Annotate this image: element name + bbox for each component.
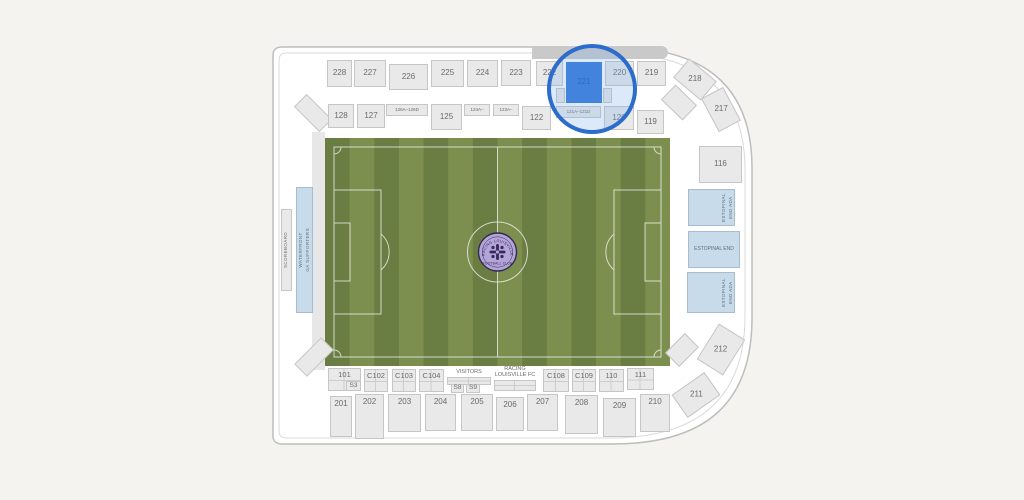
section-label: C109: [575, 372, 593, 380]
section-label: ESTOPINAL END ADA: [721, 190, 735, 225]
section-207[interactable]: 207: [527, 394, 558, 431]
section-label: 201: [334, 400, 347, 408]
section-label: 123A–: [499, 108, 512, 113]
section-label: ESTOPINAL END ADA: [721, 273, 735, 312]
racing-louisville-fc-label: RACING LOUISVILLE FC: [492, 366, 538, 380]
section-label: 217: [714, 105, 727, 113]
section-label: 225: [441, 69, 454, 77]
section-205[interactable]: 205: [461, 394, 493, 431]
section-228[interactable]: 228: [327, 60, 352, 87]
section-219[interactable]: 219: [637, 61, 666, 86]
section-label: 116: [714, 160, 727, 168]
section-C109[interactable]: C109: [572, 369, 596, 392]
section-label: C102: [367, 372, 385, 380]
section-estopinal-end-ada-south[interactable]: ESTOPINAL END ADA: [687, 272, 735, 313]
sections-layer: 2282272262252242232222212202192182171281…: [0, 0, 1024, 500]
section-label: ESTOPINAL END: [694, 247, 734, 252]
section-label: 127: [364, 112, 377, 120]
section-209[interactable]: 209: [603, 398, 636, 437]
section-label: 209: [613, 402, 626, 410]
section-label: 207: [536, 398, 549, 406]
section-estopinal-end-ada-north[interactable]: ESTOPINAL END ADA: [688, 189, 735, 226]
section-125[interactable]: 125: [431, 104, 462, 130]
section-label: 101: [338, 371, 351, 379]
section-label: 212: [714, 345, 727, 353]
section-C108[interactable]: C108: [543, 369, 569, 392]
section-226[interactable]: 226: [389, 64, 428, 90]
section-S8[interactable]: S8: [451, 384, 464, 393]
section-217[interactable]: 217: [701, 87, 741, 132]
section-label: 125: [440, 113, 453, 121]
section-label: 110: [606, 372, 618, 380]
section-210[interactable]: 210: [640, 394, 670, 432]
selected-section-highlight-circle: [547, 44, 637, 134]
section-C104[interactable]: C104: [419, 369, 444, 392]
section-label: 205: [470, 398, 483, 406]
section-label: C108: [547, 372, 565, 380]
section-corner-nw: [294, 94, 332, 132]
section-label: WATERFRONT GA SUPPORTERS: [298, 228, 312, 272]
section-S9[interactable]: S9: [466, 384, 480, 393]
visitors-label: VISITORS: [446, 369, 492, 377]
section-223[interactable]: 223: [501, 60, 531, 86]
section-224[interactable]: 224: [467, 60, 498, 87]
section-201[interactable]: 201: [330, 396, 352, 437]
section-estopinal-end[interactable]: ESTOPINAL END: [688, 231, 740, 268]
section-116[interactable]: 116: [699, 146, 742, 183]
section-label: 119: [644, 118, 657, 126]
section-208[interactable]: 208: [565, 395, 598, 434]
section-label: 202: [363, 398, 376, 406]
section-scoreboard: SCOREBOARD: [281, 209, 292, 291]
section-corner-se: [665, 333, 699, 367]
section-label: 218: [688, 75, 701, 83]
section-122[interactable]: 122: [522, 106, 551, 130]
section-label: S3: [350, 383, 358, 390]
section-206[interactable]: 206: [496, 397, 524, 431]
section-119[interactable]: 119: [637, 110, 664, 134]
section-124A–[interactable]: 124A–: [464, 104, 490, 116]
section-label: S9: [469, 385, 477, 392]
section-label: 111: [635, 371, 646, 379]
section-110[interactable]: 110: [599, 369, 624, 392]
section-label: 122: [530, 114, 543, 122]
section-225[interactable]: 225: [431, 60, 464, 87]
section-211[interactable]: 211: [672, 372, 721, 418]
section-127[interactable]: 127: [357, 104, 385, 128]
section-C103[interactable]: C103: [392, 369, 416, 392]
section-label: RACING LOUISVILLE FC: [495, 367, 535, 379]
section-212[interactable]: 212: [697, 323, 746, 375]
section-label: 227: [363, 69, 376, 77]
section-C102[interactable]: C102: [364, 369, 388, 392]
section-label: 206: [503, 401, 516, 409]
section-label: 124A–: [470, 108, 483, 113]
section-label: S8: [454, 385, 462, 392]
stadium-seating-map: RACING LOUISVILLE FOOTBALL CLUB 22822722…: [0, 0, 1024, 500]
section-label: 210: [648, 398, 661, 406]
section-S3[interactable]: S3: [346, 381, 361, 391]
racing-louisville-boxes[interactable]: [494, 380, 536, 391]
section-126A–126D[interactable]: 126A–126D: [386, 104, 428, 116]
section-label: 228: [333, 69, 346, 77]
section-label: 223: [509, 69, 522, 77]
section-waterfront-ga-supporters[interactable]: WATERFRONT GA SUPPORTERS: [296, 187, 313, 313]
section-label: 126A–126D: [395, 108, 419, 113]
section-label: 219: [645, 69, 658, 77]
section-label: 211: [690, 391, 703, 399]
section-202[interactable]: 202: [355, 394, 384, 439]
section-label: C103: [395, 372, 413, 380]
section-128[interactable]: 128: [328, 104, 354, 128]
section-203[interactable]: 203: [388, 394, 421, 432]
section-label: SCOREBOARD: [283, 232, 290, 268]
section-label: 224: [476, 69, 489, 77]
section-label: 203: [398, 398, 411, 406]
section-label: 204: [434, 398, 447, 406]
section-label: C104: [423, 372, 441, 380]
section-label: 226: [402, 73, 415, 81]
section-label: 128: [334, 112, 347, 120]
section-227[interactable]: 227: [354, 60, 386, 87]
section-123A–[interactable]: 123A–: [493, 104, 519, 116]
section-111[interactable]: 111: [627, 368, 654, 390]
section-label: 208: [575, 399, 588, 407]
section-204[interactable]: 204: [425, 394, 456, 431]
west-walkway: [312, 132, 325, 370]
section-label: VISITORS: [456, 370, 482, 376]
